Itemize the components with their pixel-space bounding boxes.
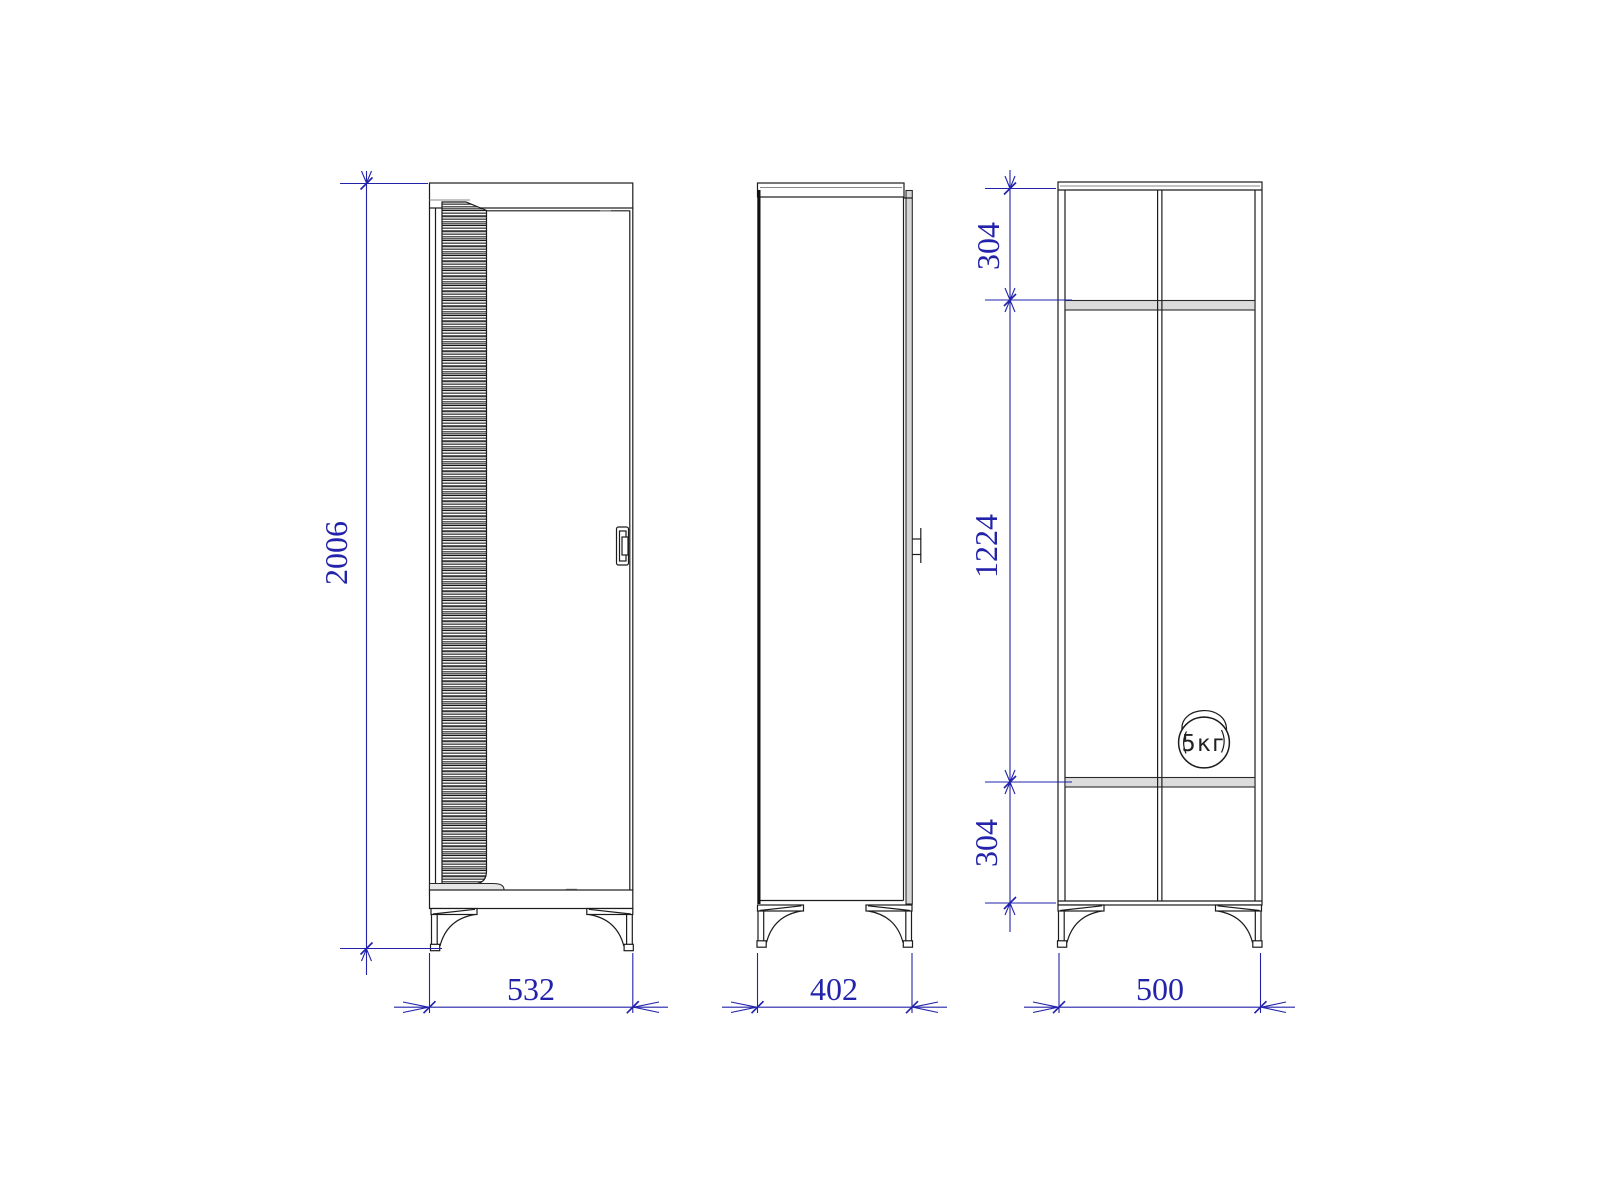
lower-shelf	[1065, 778, 1255, 788]
dimension-front-width: 532	[394, 953, 668, 1013]
side-door-handle	[912, 528, 921, 563]
front-view	[430, 183, 634, 951]
front-right-leg	[587, 909, 634, 951]
dimension-section-width: 500	[1024, 953, 1295, 1013]
section-right-leg	[1216, 905, 1263, 947]
section-bottom-value: 304	[968, 819, 1004, 867]
dimension-side-depth: 402	[722, 953, 947, 1013]
section-top-value: 304	[970, 222, 1006, 270]
overall-height-value: 2006	[318, 521, 354, 585]
side-left-leg	[757, 905, 804, 947]
front-left-leg	[431, 909, 478, 951]
section-view: 5кг	[1058, 182, 1263, 947]
front-width-value: 532	[507, 971, 555, 1007]
side-door-slab	[906, 191, 912, 905]
ribbed-mirror-strip	[442, 202, 487, 884]
side-back-edge	[757, 190, 760, 904]
side-right-leg	[866, 905, 913, 947]
section-left-leg	[1058, 905, 1105, 947]
technical-drawing: 5кг 2006 304 1224 304	[0, 0, 1600, 1200]
section-middle-value: 1224	[968, 514, 1004, 578]
upper-shelf	[1065, 301, 1255, 311]
drawing-canvas: 5кг 2006 304 1224 304	[0, 0, 1600, 1200]
door-handle	[617, 527, 629, 565]
section-outline	[1058, 182, 1262, 905]
dimension-section-chain: 304 1224 304	[968, 170, 1072, 932]
front-bottom-rail	[430, 890, 633, 909]
side-depth-value: 402	[810, 971, 858, 1007]
section-width-value: 500	[1136, 971, 1184, 1007]
max-load-label: 5кг	[1182, 731, 1227, 757]
side-view	[757, 183, 921, 947]
dimension-overall-height: 2006	[318, 171, 442, 975]
side-top-panel	[758, 183, 905, 197]
